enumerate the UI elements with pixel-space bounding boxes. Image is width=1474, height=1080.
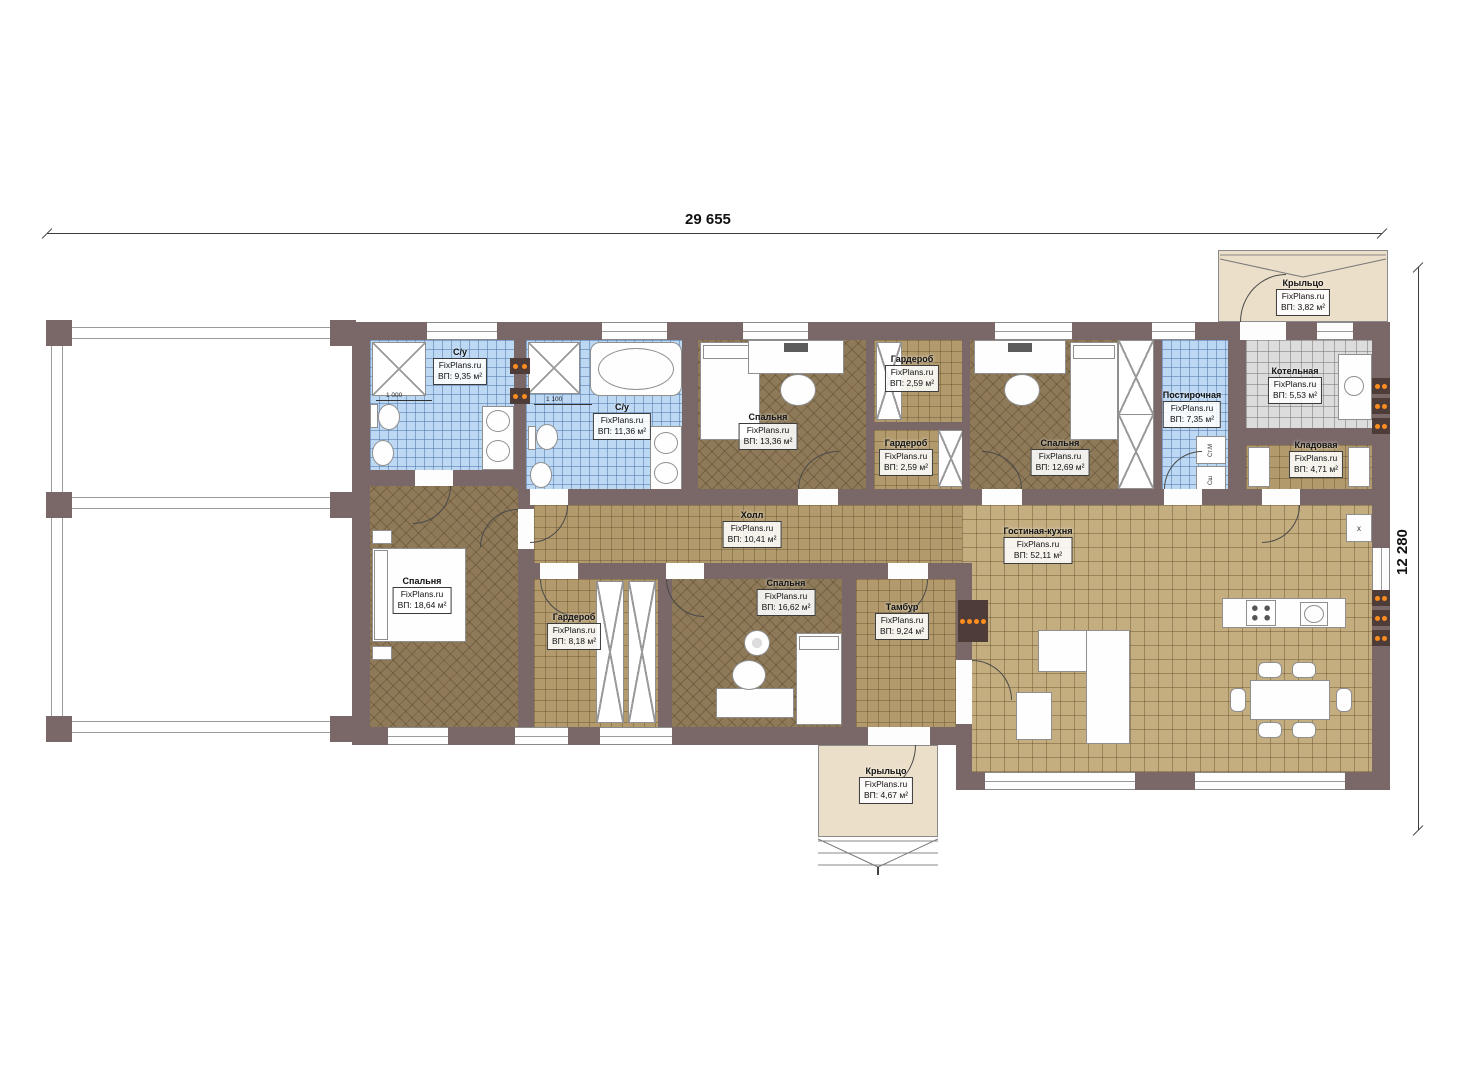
window [1195, 772, 1345, 790]
room-name: Спальня [739, 412, 798, 422]
room-name: Крыльцо [859, 766, 913, 776]
radiator [1372, 610, 1390, 626]
window [1152, 322, 1195, 340]
terrace-beam [46, 721, 352, 733]
bed-pillow [799, 636, 839, 650]
plant-pot [744, 630, 770, 656]
dining-chair [1336, 688, 1352, 712]
window [600, 727, 672, 745]
room-name: Котельная [1268, 366, 1322, 376]
room-area: ВП: 12,69 м² [1036, 462, 1085, 473]
watermark: FixPlans.ru [398, 589, 447, 600]
door-gap-bedroom12 [982, 489, 1022, 505]
bed-pillow [374, 550, 388, 640]
wall-bedroom12-laundry [1154, 340, 1162, 489]
door-gap-tambur-hall [888, 563, 928, 579]
nightstand [372, 646, 392, 660]
desk-chair [780, 374, 816, 406]
radiator [1372, 630, 1390, 646]
room-label-wardrobe8: Гардероб FixPlans.ru ВП: 8,18 м² [547, 612, 601, 650]
bathtub-basin [598, 348, 674, 390]
terrace-post [330, 716, 356, 742]
storage-shelf [1348, 447, 1370, 487]
room-area: ВП: 52,11 м² [1009, 550, 1068, 561]
sofa-chaise [1086, 630, 1130, 744]
wall-wardrobes-bedroom12 [962, 340, 970, 489]
room-name: Гардероб [885, 354, 939, 364]
dining-chair [1258, 662, 1282, 678]
coffee-table [1016, 692, 1052, 740]
wall-exterior-left [352, 322, 370, 745]
radiator [1372, 590, 1390, 606]
radiator [1372, 398, 1390, 414]
inner-dimension-label: 1 000 [386, 392, 402, 399]
nightstand [372, 530, 392, 544]
storage-shelf [1248, 447, 1270, 487]
dining-table [1250, 680, 1330, 720]
terrace-post [330, 492, 356, 518]
room-label-su2: С/у FixPlans.ru ВП: 11,36 м² [593, 402, 651, 440]
room-label-porchTop: Крыльцо FixPlans.ru ВП: 3,82 м² [1276, 278, 1330, 316]
terrace-beam [51, 327, 63, 733]
window [1317, 322, 1353, 340]
terrace-post [330, 320, 356, 346]
room-name: Гардероб [879, 438, 933, 448]
dining-chair [1292, 662, 1316, 678]
terrace-beam [46, 497, 352, 509]
room-name: Спальня [1031, 438, 1090, 448]
door-gap-wardrobe8 [540, 563, 578, 579]
dining-chair [1258, 722, 1282, 738]
wardrobe-unit [938, 430, 964, 487]
shower-cabin [528, 342, 580, 394]
room-area: ВП: 7,35 м² [1168, 414, 1216, 425]
watermark: FixPlans.ru [884, 451, 928, 462]
top-dimension-line [47, 233, 1382, 234]
room-area: ВП: 2,59 м² [884, 462, 928, 473]
room-label-bedroom13: Спальня FixPlans.ru ВП: 13,36 м² [739, 412, 798, 450]
room-area: ВП: 5,53 м² [1273, 390, 1317, 401]
door-gap-bedroom13 [798, 489, 838, 505]
wall-exterior-top [352, 322, 1390, 340]
wall-bath2-bedroom13 [682, 340, 698, 489]
fridge: x [1346, 514, 1372, 542]
room-name: Тамбур [875, 602, 929, 612]
inner-dimension-line [376, 400, 432, 401]
wall-spine [518, 489, 1390, 505]
watermark: FixPlans.ru [762, 591, 811, 602]
desk-monitor [1008, 343, 1032, 352]
watermark: FixPlans.ru [598, 415, 646, 426]
door-gap-laundry [1164, 489, 1202, 505]
room-area: ВП: 11,36 м² [598, 426, 646, 437]
shower-cabin [372, 342, 426, 396]
watermark: FixPlans.ru [890, 367, 934, 378]
room-label-laundry: Постирочная FixPlans.ru ВП: 7,35 м² [1163, 390, 1221, 428]
terrace-post [46, 492, 72, 518]
desk-chair [1004, 374, 1040, 406]
room-name: Кладовая [1289, 440, 1343, 450]
right-dimension-line [1418, 267, 1419, 830]
room-label-bedroom12: Спальня FixPlans.ru ВП: 12,69 м² [1031, 438, 1090, 476]
watermark: FixPlans.ru [728, 523, 777, 534]
window [388, 727, 448, 745]
radiator [510, 388, 530, 404]
bidet [530, 462, 552, 488]
room-name: Гардероб [547, 612, 601, 622]
wall-laundry-boiler [1228, 340, 1246, 505]
inner-dimension-label: 1 100 [546, 396, 562, 403]
room-label-tambur: Тамбур FixPlans.ru ВП: 9,24 м² [875, 602, 929, 640]
room-name: Постирочная [1163, 390, 1221, 400]
right-dimension-label: 12 280 [1394, 529, 1411, 575]
room-name: С/у [433, 347, 487, 357]
room-label-living: Гостиная-кухня FixPlans.ru ВП: 52,11 м² [1004, 526, 1073, 564]
room-name: Спальня [757, 578, 816, 588]
room-name: Спальня [393, 576, 452, 586]
watermark: FixPlans.ru [1281, 291, 1325, 302]
room-area: ВП: 16,62 м² [762, 602, 811, 613]
wall-bedroom13-wardrobes [866, 340, 874, 489]
room-area: ВП: 4,71 м² [1294, 464, 1338, 475]
door-gap-bath2 [530, 489, 568, 505]
room-area: ВП: 10,41 м² [728, 534, 777, 545]
wardrobe-unit [596, 581, 624, 723]
watermark: FixPlans.ru [1294, 453, 1338, 464]
bidet [372, 440, 394, 466]
boiler-tank [1344, 376, 1364, 396]
room-name: Гостиная-кухня [1004, 526, 1073, 536]
dining-chair [1292, 722, 1316, 738]
sink [486, 410, 510, 432]
window [743, 322, 808, 340]
watermark: FixPlans.ru [1009, 539, 1068, 550]
watermark: FixPlans.ru [438, 360, 482, 371]
room-label-storage: Кладовая FixPlans.ru ВП: 4,71 м² [1289, 440, 1343, 478]
window [985, 772, 1135, 790]
room-area: ВП: 3,82 м² [1281, 302, 1325, 313]
wardrobe-unit [628, 581, 656, 723]
closet-unit [1118, 340, 1154, 415]
room-area: ВП: 2,59 м² [890, 378, 934, 389]
window [995, 322, 1072, 340]
window [427, 322, 497, 340]
toilet [378, 404, 400, 430]
stove [1246, 600, 1276, 626]
top-dimension-label: 29 655 [685, 211, 731, 228]
door-gap-storage [1262, 489, 1300, 505]
room-label-wardrobeB: Гардероб FixPlans.ru ВП: 2,59 м² [879, 438, 933, 476]
room-area: ВП: 9,24 м² [880, 626, 924, 637]
room-label-su1: С/у FixPlans.ru ВП: 9,35 м² [433, 347, 487, 385]
closet-unit [1118, 414, 1154, 489]
toilet-tank [370, 404, 378, 428]
room-area: ВП: 18,64 м² [398, 600, 447, 611]
room-area: ВП: 4,67 м² [864, 790, 908, 801]
terrace-post [46, 716, 72, 742]
room-area: ВП: 8,18 м² [552, 636, 596, 647]
door-gap-bath1 [415, 470, 453, 486]
tambur-porch-door-gap [868, 727, 930, 745]
room-label-porchBottom: Крыльцо FixPlans.ru ВП: 4,67 м² [859, 766, 913, 804]
watermark: FixPlans.ru [880, 615, 924, 626]
fireplace [958, 600, 988, 642]
room-name: С/у [593, 402, 651, 412]
wall-wardrobe-divider [866, 422, 970, 430]
toilet [536, 424, 558, 450]
porch-bottom-steps [818, 837, 938, 877]
terrace-beam [46, 327, 352, 339]
room-label-bedroom18: Спальня FixPlans.ru ВП: 18,64 м² [393, 576, 452, 614]
sink [654, 432, 678, 454]
desk-chair [732, 660, 766, 690]
window [515, 727, 568, 745]
door-gap-bedroom16 [666, 563, 704, 579]
floor-plan-canvas: 29 655 12 280 [0, 0, 1474, 1080]
room-name: Холл [723, 510, 782, 520]
room-area: ВП: 9,35 м² [438, 371, 482, 382]
watermark: FixPlans.ru [744, 425, 793, 436]
door-gap-tambur-living [956, 660, 972, 724]
watermark: FixPlans.ru [1036, 451, 1085, 462]
window [602, 322, 667, 340]
room-label-hall: Холл FixPlans.ru ВП: 10,41 м² [723, 510, 782, 548]
radiator [1372, 418, 1390, 434]
watermark: FixPlans.ru [1168, 403, 1216, 414]
entry-door-gap-top [1240, 322, 1286, 340]
sink [486, 440, 510, 462]
kitchen-sink-basin [1304, 605, 1324, 623]
watermark: FixPlans.ru [1273, 379, 1317, 390]
sink [654, 462, 678, 484]
room-label-wardrobeT: Гардероб FixPlans.ru ВП: 2,59 м² [885, 354, 939, 392]
dining-chair [1230, 688, 1246, 712]
room-label-bedroom16: Спальня FixPlans.ru ВП: 16,62 м² [757, 578, 816, 616]
toilet-tank [528, 426, 536, 450]
radiator [1372, 378, 1390, 394]
radiator [510, 358, 530, 374]
terrace-post [46, 320, 72, 346]
room-name: Крыльцо [1276, 278, 1330, 288]
watermark: FixPlans.ru [552, 625, 596, 636]
room-label-boiler: Котельная FixPlans.ru ВП: 5,53 м² [1268, 366, 1322, 404]
wall-bedroom16-tambur [842, 563, 856, 727]
desk-monitor [784, 343, 808, 352]
desk [716, 688, 794, 718]
inner-dimension-line [534, 404, 592, 405]
watermark: FixPlans.ru [864, 779, 908, 790]
bed-pillow [1073, 345, 1115, 359]
room-area: ВП: 13,36 м² [744, 436, 793, 447]
